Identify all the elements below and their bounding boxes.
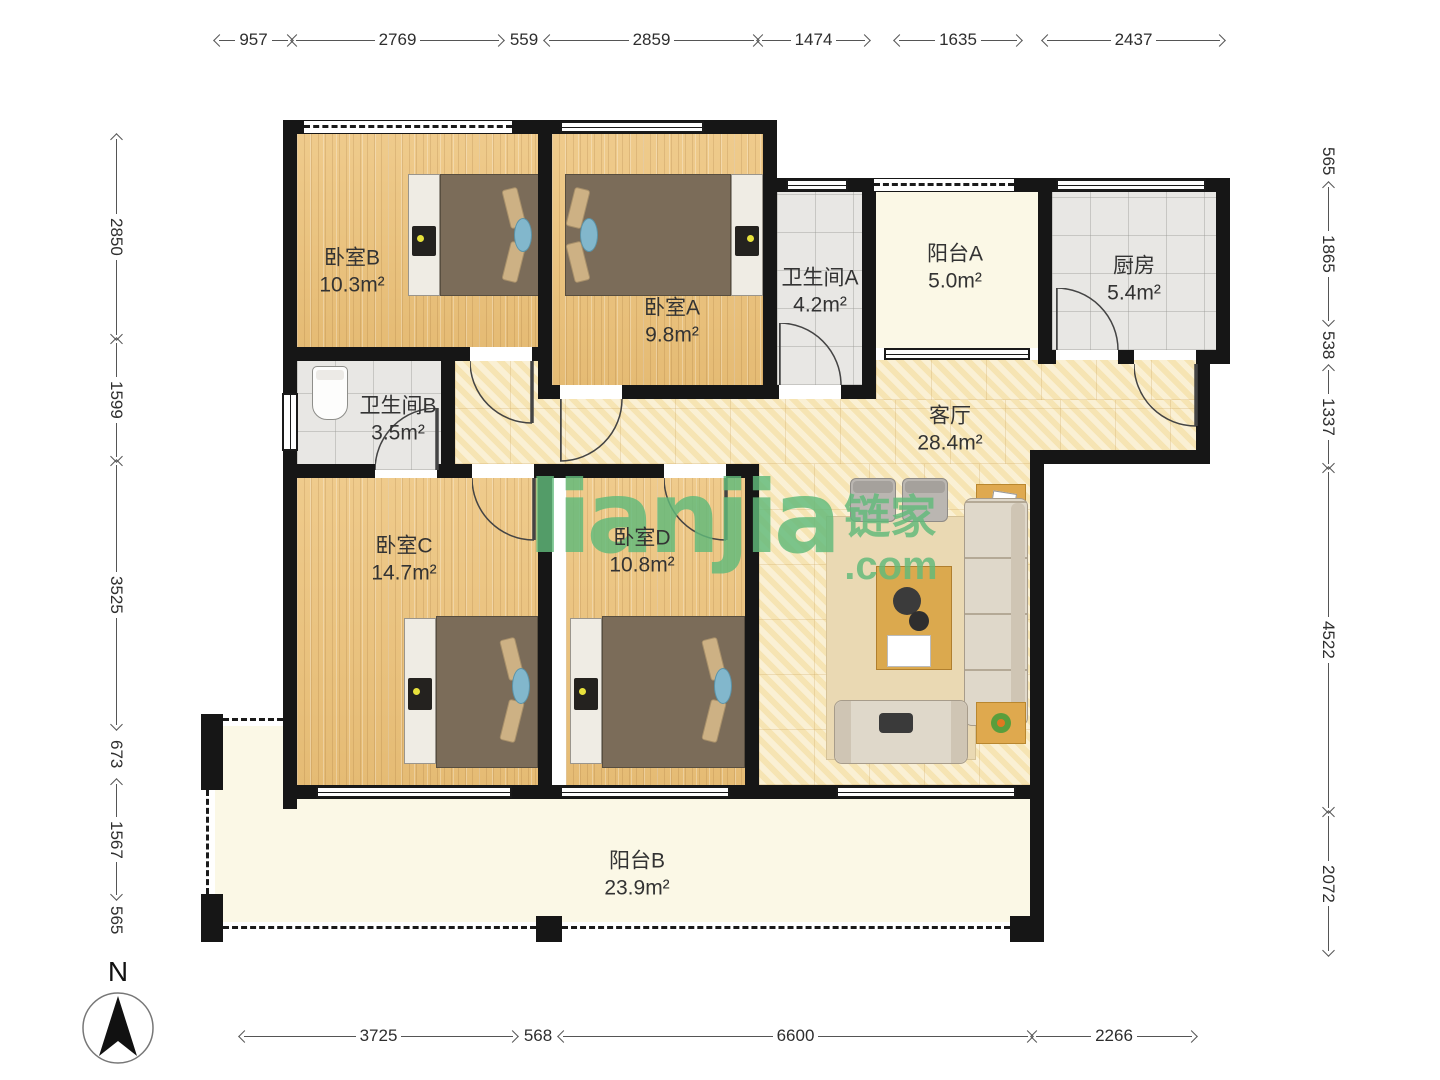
wall xyxy=(201,894,223,942)
dim-top-0: 957 xyxy=(215,30,292,50)
wall xyxy=(441,361,455,478)
north-compass: N xyxy=(80,958,156,1071)
floorplan-canvas: 卧室B 10.3m² 卧室A 9.8m² 卫生间A 4.2m² 阳台A 5.0m… xyxy=(0,0,1440,1080)
wall xyxy=(538,464,552,799)
room-name: 阳台A xyxy=(927,241,983,268)
window xyxy=(560,786,730,798)
wall xyxy=(1038,178,1052,364)
dim-top-6: 2437 xyxy=(1043,30,1224,50)
room-label-bedroomC: 卧室C 14.7m² xyxy=(371,533,436,588)
wall xyxy=(201,714,223,790)
window xyxy=(884,348,1030,360)
door-arc xyxy=(560,399,624,463)
room-area: 14.7m² xyxy=(371,560,436,587)
wall xyxy=(283,347,470,361)
coffee-table xyxy=(876,566,952,670)
dim-left-1: 1599 xyxy=(106,339,126,461)
toilet xyxy=(312,366,348,420)
room-name: 卧室A xyxy=(644,295,700,322)
room-area: 5.4m² xyxy=(1107,280,1161,307)
balcony-window xyxy=(562,922,1010,934)
room-balconyB-floor-left xyxy=(215,726,283,922)
room-name: 厨房 xyxy=(1107,253,1161,280)
room-area: 23.9m² xyxy=(604,875,669,902)
dim-left-3: 673 xyxy=(106,729,126,780)
wall xyxy=(536,916,562,942)
room-label-bathA: 卫生间A 4.2m² xyxy=(781,265,858,320)
dim-right-1: 1865 xyxy=(1318,183,1338,325)
window xyxy=(1056,179,1206,191)
room-label-bathB: 卫生间B 3.5m² xyxy=(359,393,436,448)
cushion xyxy=(512,668,530,704)
dim-top-4: 1474 xyxy=(758,30,869,50)
north-arrow-icon xyxy=(80,990,156,1066)
wall xyxy=(1030,450,1044,799)
wall xyxy=(532,347,552,361)
room-label-bedroomD: 卧室D 10.8m² xyxy=(609,525,674,580)
tv xyxy=(412,226,436,256)
cushion xyxy=(580,218,598,252)
window xyxy=(836,786,1016,798)
wall xyxy=(538,385,560,399)
dim-left-5: 565 xyxy=(106,899,126,942)
armchair xyxy=(850,478,896,522)
wall xyxy=(1216,178,1230,364)
bay-window xyxy=(304,121,512,133)
room-label-kitchen: 厨房 5.4m² xyxy=(1107,253,1161,308)
room-label-bedroomB: 卧室B 10.3m² xyxy=(319,245,384,300)
room-label-living: 客厅 28.4m² xyxy=(917,403,982,458)
dim-top-3: 2859 xyxy=(545,30,758,50)
room-name: 客厅 xyxy=(917,403,982,430)
sofa xyxy=(964,498,1028,726)
dim-right-5: 2072 xyxy=(1318,812,1338,955)
room-label-balconyB: 阳台B 23.9m² xyxy=(604,848,669,903)
room-name: 卫生间A xyxy=(781,265,858,292)
wall xyxy=(283,464,375,478)
entry-door-arc xyxy=(1134,364,1198,428)
cushion xyxy=(514,218,532,252)
dim-right-3: 1337 xyxy=(1318,366,1338,468)
room-name: 卧室C xyxy=(371,533,436,560)
dim-bottom-0: 3725 xyxy=(240,1026,517,1046)
armchair xyxy=(902,478,948,522)
window xyxy=(316,786,512,798)
room-area: 3.5m² xyxy=(359,420,436,447)
door-arc xyxy=(472,478,536,542)
room-name: 阳台B xyxy=(604,848,669,875)
dim-bottom-2: 6600 xyxy=(559,1026,1032,1046)
wall xyxy=(622,385,777,399)
balcony-window xyxy=(223,922,536,934)
room-name: 卫生间B xyxy=(359,393,436,420)
tv xyxy=(735,226,759,256)
wall xyxy=(763,192,777,399)
door-arc xyxy=(470,361,534,425)
wall xyxy=(745,464,759,799)
room-label-balconyA: 阳台A 5.0m² xyxy=(927,241,983,296)
side-table xyxy=(976,702,1026,744)
door-arc xyxy=(779,323,843,387)
dim-bottom-3: 2266 xyxy=(1032,1026,1196,1046)
balcony-window xyxy=(201,790,215,894)
loveseat-sofa xyxy=(834,700,968,764)
balcony-window xyxy=(223,714,283,726)
wall xyxy=(1196,364,1210,464)
room-area: 5.0m² xyxy=(927,268,983,295)
wall xyxy=(763,385,779,399)
cushion xyxy=(714,668,732,704)
room-name: 卧室B xyxy=(319,245,384,272)
dim-top-1: 2769 xyxy=(292,30,503,50)
wall xyxy=(1030,450,1210,464)
room-area: 9.8m² xyxy=(644,322,700,349)
room-area: 10.3m² xyxy=(319,272,384,299)
balcony-window xyxy=(874,179,1014,191)
dim-left-0: 2850 xyxy=(106,135,126,339)
window xyxy=(560,121,704,133)
wall xyxy=(1038,350,1056,364)
room-area: 10.8m² xyxy=(609,552,674,579)
wall xyxy=(552,464,664,478)
dim-right-2: 538 xyxy=(1318,325,1338,366)
wall xyxy=(1010,916,1044,942)
dim-right-4: 4522 xyxy=(1318,468,1338,812)
dim-left-2: 3525 xyxy=(106,461,126,729)
wall xyxy=(1118,350,1134,364)
dim-bottom-1: 568 xyxy=(517,1026,559,1046)
dim-top-2: 559 xyxy=(503,30,545,50)
room-area: 28.4m² xyxy=(917,430,982,457)
dim-left-4: 1567 xyxy=(106,780,126,899)
tv xyxy=(408,678,432,710)
room-label-bedroomA: 卧室A 9.8m² xyxy=(644,295,700,350)
dim-right-0: 565 xyxy=(1318,140,1338,183)
room-area: 4.2m² xyxy=(781,292,858,319)
wall xyxy=(862,178,876,399)
window xyxy=(786,179,848,191)
window xyxy=(282,393,298,451)
north-label: N xyxy=(80,958,156,986)
wall xyxy=(437,464,472,478)
tv xyxy=(574,678,598,710)
room-name: 卧室D xyxy=(609,525,674,552)
dim-top-5: 1635 xyxy=(895,30,1021,50)
